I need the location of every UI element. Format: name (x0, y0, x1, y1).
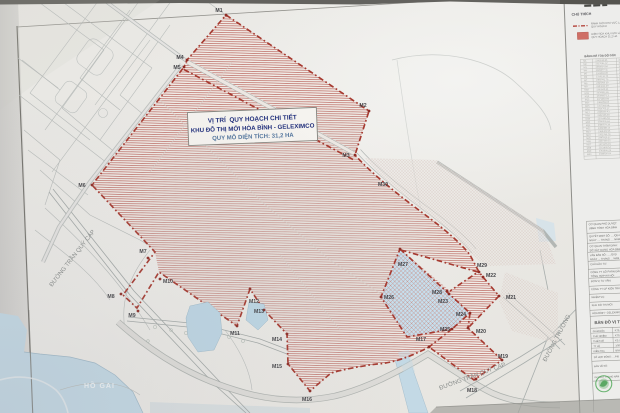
svg-text:M5: M5 (173, 65, 180, 71)
svg-text:M18: M18 (467, 388, 477, 394)
svg-text:M14: M14 (585, 102, 590, 104)
svg-text:M23: M23 (586, 131, 591, 133)
svg-text:TỶ LỆ: TỶ LỆ (593, 345, 600, 348)
svg-text:M1: M1 (215, 8, 222, 14)
svg-text:QUY HOẠCH: QUY HOẠCH (591, 24, 607, 29)
svg-text:M23: M23 (438, 299, 448, 305)
svg-text:M28: M28 (432, 290, 442, 296)
svg-text:M13: M13 (585, 99, 590, 101)
svg-text:KIỂM TRA: KIỂM TRA (593, 350, 605, 353)
svg-text:M29: M29 (477, 263, 487, 269)
svg-text:M27: M27 (587, 144, 592, 146)
svg-text:M20: M20 (476, 329, 486, 335)
svg-text:M4: M4 (176, 55, 183, 61)
svg-text:CHÚ THÍCH: CHÚ THÍCH (571, 11, 591, 17)
svg-text:M20: M20 (586, 122, 591, 124)
svg-text:M17: M17 (416, 337, 426, 343)
svg-text:M26: M26 (586, 141, 591, 143)
svg-text:M25: M25 (586, 138, 591, 140)
svg-text:CHỦ NHIỆM: CHỦ NHIỆM (593, 335, 607, 339)
svg-text:M16: M16 (585, 109, 590, 111)
svg-text:M12: M12 (585, 96, 590, 98)
svg-text:M19: M19 (586, 119, 591, 121)
svg-text:M17: M17 (585, 112, 590, 114)
svg-text:KS. LÊ: KS. LÊ (615, 339, 620, 342)
svg-text:M19: M19 (498, 354, 508, 360)
svg-text:M18: M18 (585, 115, 590, 117)
svg-text:M30: M30 (587, 154, 592, 156)
svg-text:THIẾT KẾ: THIẾT KẾ (593, 340, 604, 343)
svg-text:M22: M22 (586, 128, 591, 130)
svg-text:M28: M28 (587, 148, 592, 150)
svg-text:KTS. TRẦN: KTS. TRẦN (615, 334, 620, 337)
svg-text:KTS. NGUYỄN: KTS. NGUYỄN (615, 329, 620, 333)
svg-text:GIÁM ĐỐC: GIÁM ĐỐC (593, 330, 605, 333)
svg-text:M24: M24 (586, 135, 591, 137)
svg-text:M29: M29 (587, 151, 592, 153)
svg-text:BẢN VẼ SỐ:: BẢN VẼ SỐ: (594, 365, 608, 369)
svg-text:M21: M21 (586, 125, 591, 127)
svg-text:M22: M22 (486, 273, 496, 279)
svg-text:M21: M21 (506, 295, 516, 301)
svg-text:1/5000: 1/5000 (615, 344, 620, 347)
svg-text:M25: M25 (440, 327, 450, 333)
svg-text:M24: M24 (456, 312, 466, 318)
svg-text:BẢN ĐỒ VỊ TRÍ: BẢN ĐỒ VỊ TRÍ (594, 319, 620, 325)
svg-text:M15: M15 (585, 106, 590, 108)
svg-text:M10: M10 (584, 89, 589, 91)
svg-text:BẢN VẼ: BẢN VẼ (615, 349, 620, 352)
